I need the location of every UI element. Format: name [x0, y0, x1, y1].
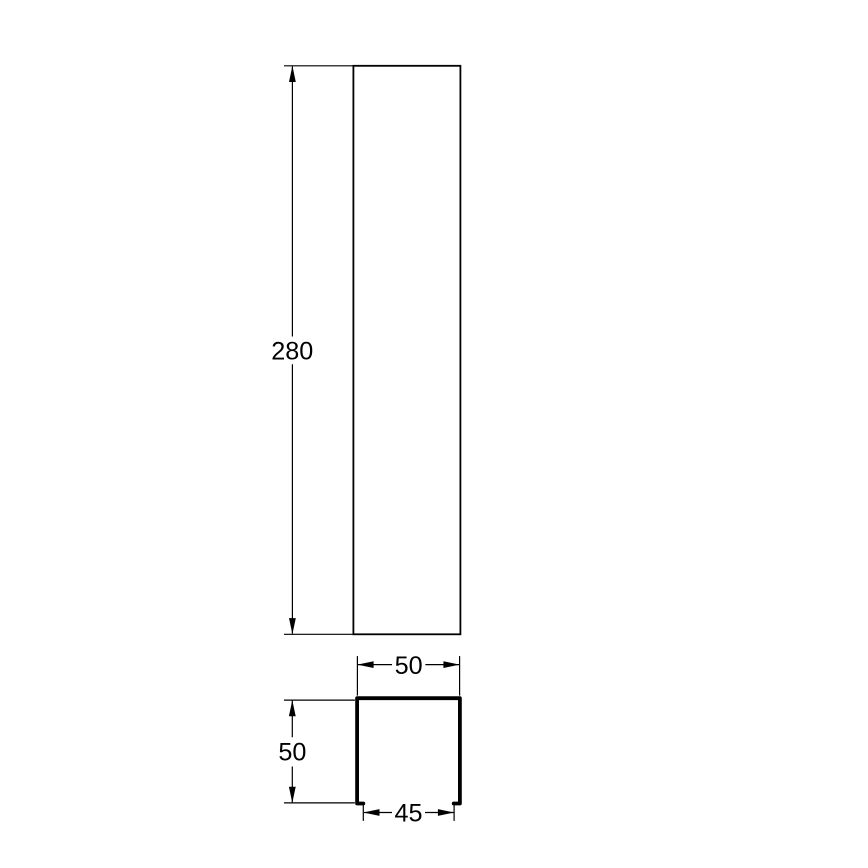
svg-text:50: 50 [278, 739, 306, 767]
svg-text:45: 45 [394, 800, 422, 828]
svg-text:50: 50 [395, 652, 423, 680]
svg-text:280: 280 [271, 338, 313, 366]
